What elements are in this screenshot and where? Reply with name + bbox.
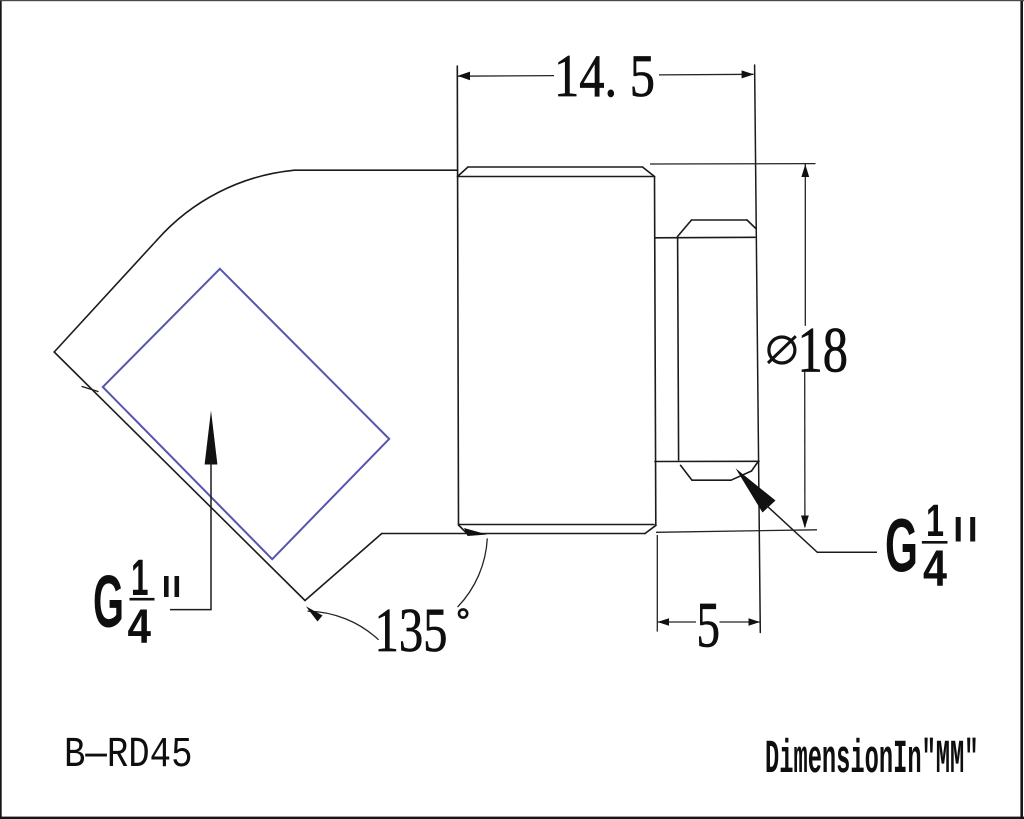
svg-text:B—RD45: B—RD45 — [64, 730, 193, 779]
svg-text:135: 135 — [375, 597, 448, 665]
svg-text:4: 4 — [128, 601, 152, 654]
svg-text:4: 4 — [923, 539, 948, 596]
svg-text:1: 1 — [131, 549, 149, 606]
svg-text:5: 5 — [697, 589, 721, 661]
svg-text:18: 18 — [798, 315, 849, 387]
svg-text:G: G — [93, 560, 124, 643]
svg-text:G: G — [885, 504, 918, 588]
svg-text:1: 1 — [926, 495, 944, 546]
svg-text:DimensionIn"MM": DimensionIn"MM" — [765, 734, 979, 787]
svg-text:14. 5: 14. 5 — [554, 43, 655, 109]
